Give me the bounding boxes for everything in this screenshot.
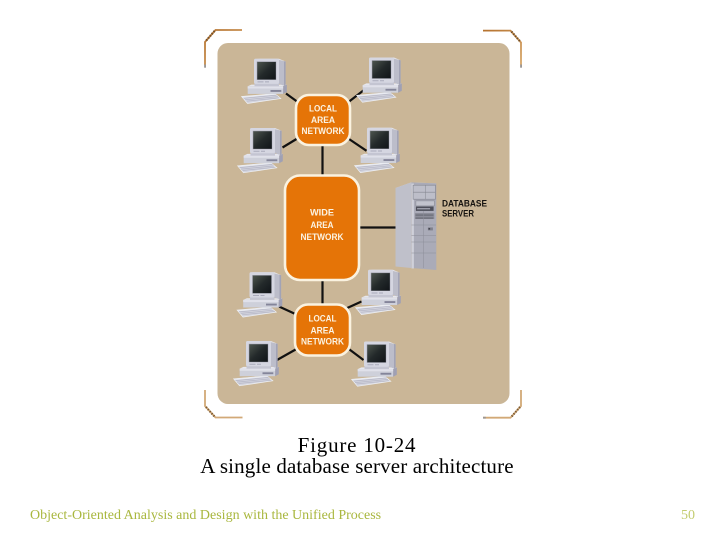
svg-text:AREA: AREA	[311, 220, 334, 231]
svg-text:AREA: AREA	[311, 115, 335, 126]
svg-text:NETWORK: NETWORK	[301, 232, 344, 243]
svg-text:SERVER: SERVER	[442, 208, 474, 219]
svg-text:LOCAL: LOCAL	[309, 104, 337, 115]
svg-text:WIDE: WIDE	[310, 207, 334, 218]
svg-text:NETWORK: NETWORK	[301, 337, 344, 348]
svg-text:NETWORK: NETWORK	[302, 126, 345, 137]
svg-text:AREA: AREA	[311, 326, 335, 337]
svg-text:LOCAL: LOCAL	[309, 314, 337, 325]
